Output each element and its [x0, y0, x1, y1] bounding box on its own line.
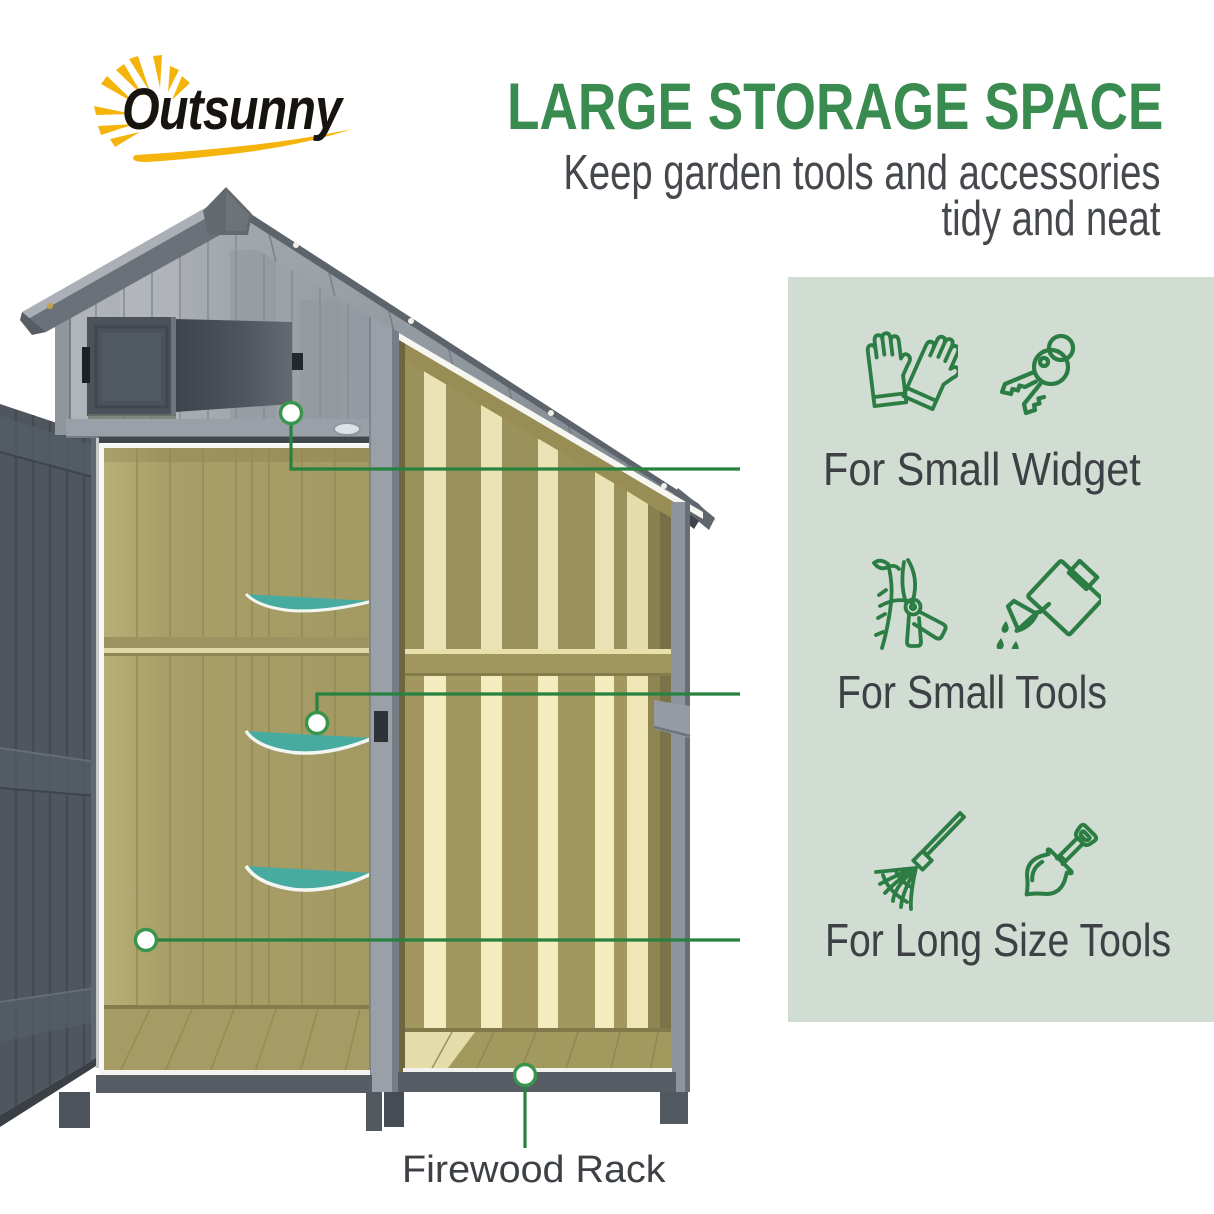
svg-text:Outsunny: Outsunny: [122, 78, 344, 142]
